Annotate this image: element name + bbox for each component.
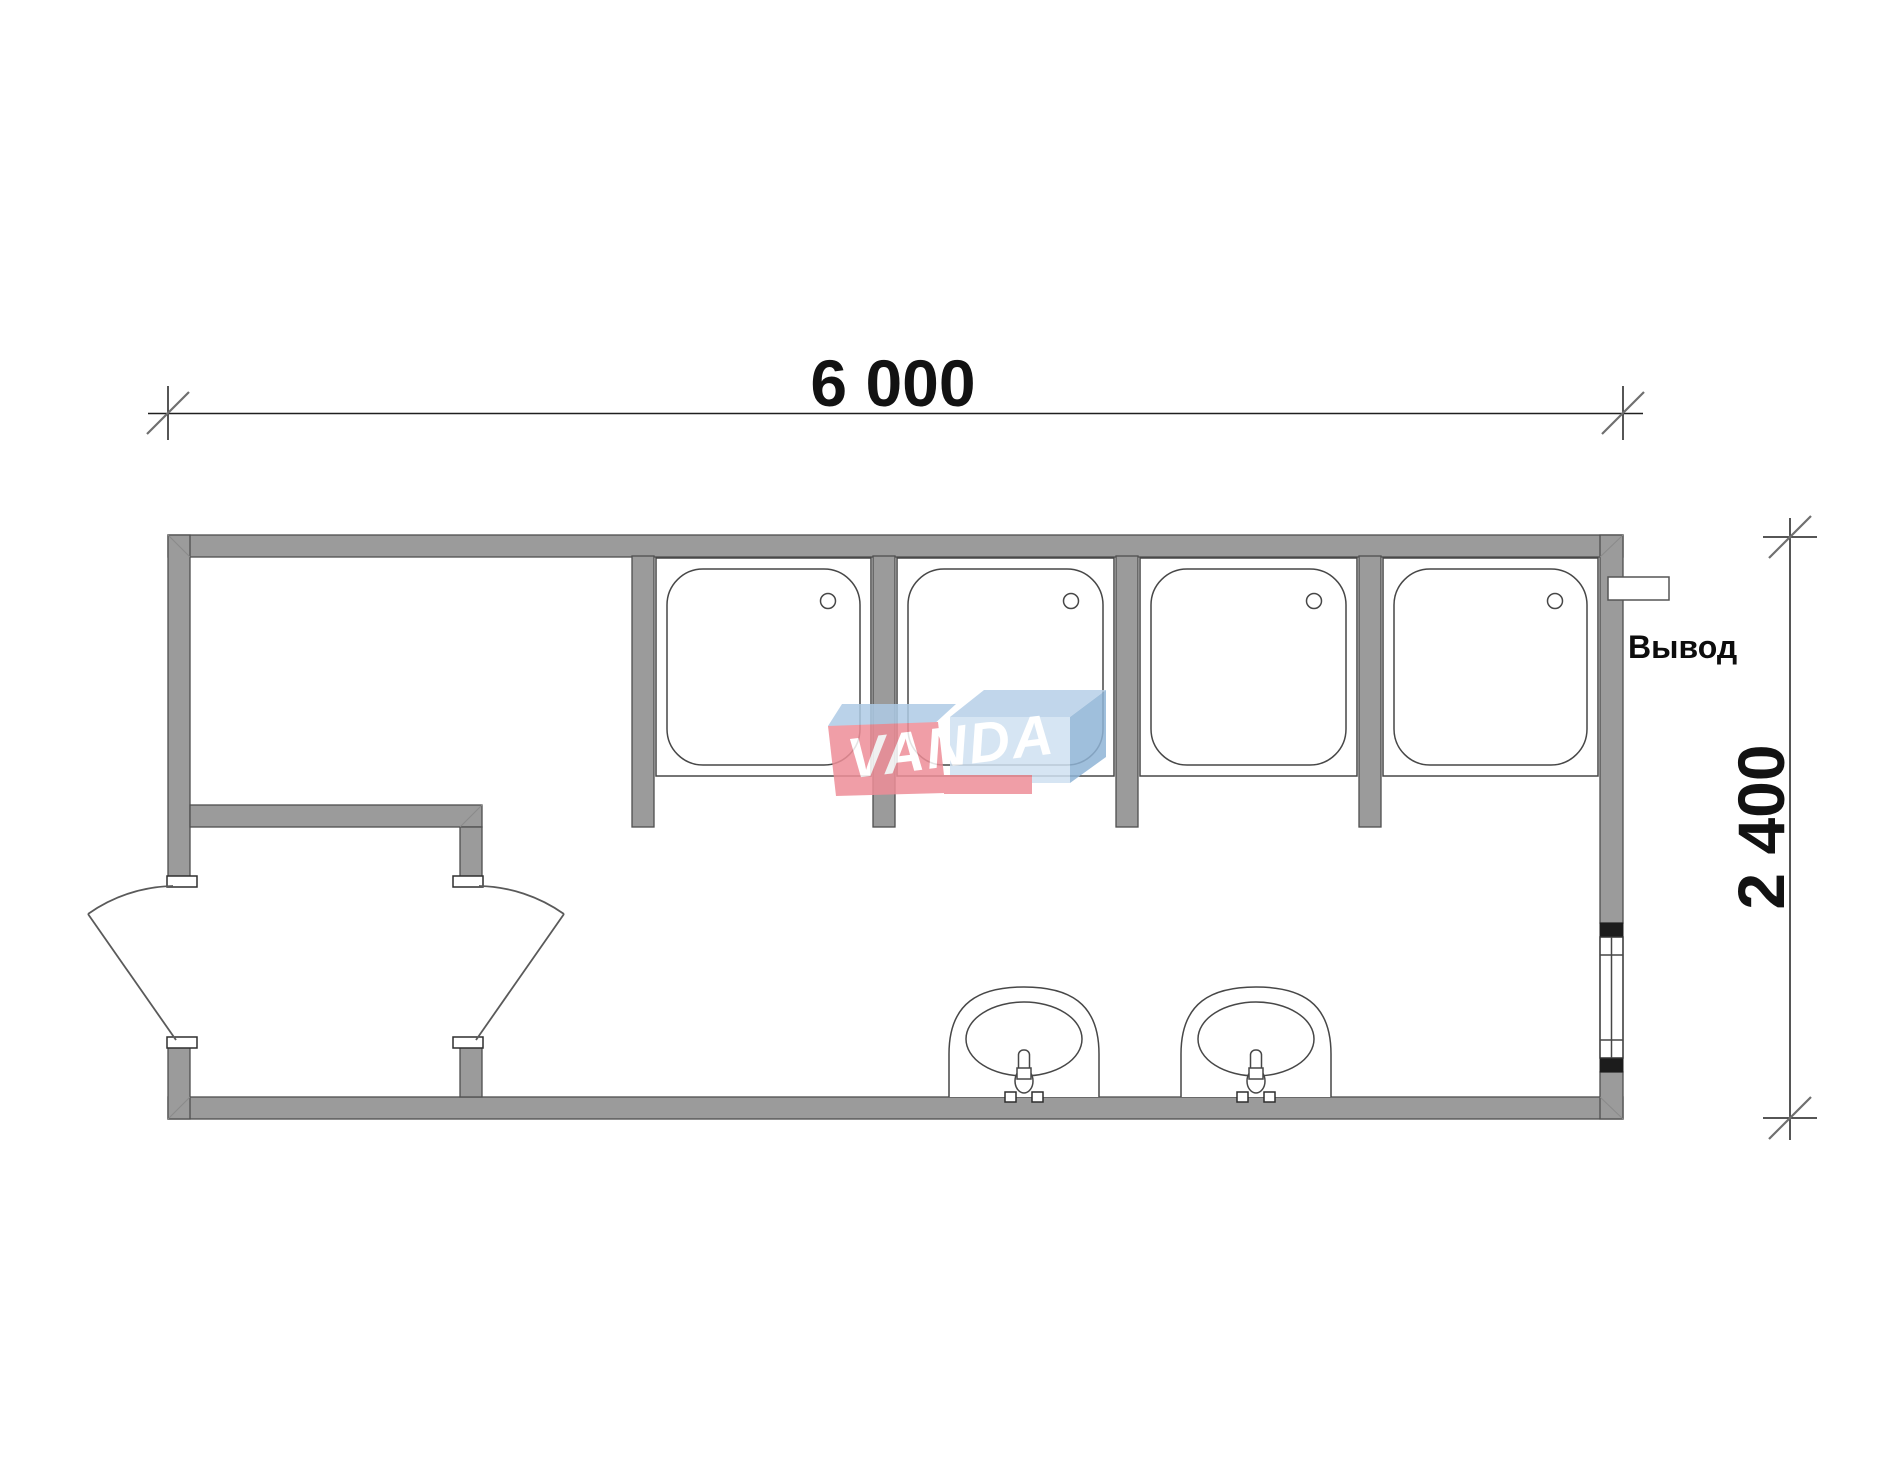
faucet-joint [1017,1068,1031,1079]
washbasin-bracket [1264,1092,1275,1102]
shower-drain [1064,594,1079,609]
washbasin-1 [949,987,1099,1102]
wall-right-lower [1600,1072,1623,1119]
dimension-depth: 2 400 [1724,516,1817,1140]
shower-drain [1307,594,1322,609]
wall-left-upper [168,535,190,877]
shower-stall-3 [1140,558,1357,776]
dimension-length: 6 000 [147,346,1644,440]
wall-bottom [168,1097,1623,1119]
exterior-door-swing-arc [88,886,173,914]
window-cap-top [1600,923,1623,937]
exterior-door-leaf [88,914,176,1040]
dimension-depth-label: 2 400 [1724,744,1798,909]
wall-top [168,535,1623,557]
vestibule-wall-vertical-lower [460,1047,482,1097]
shower-drain [1548,594,1563,609]
floor-plan-page: 6 000 2 400 Вывод VANDA [0,0,1899,1481]
shower-partition-3 [1116,556,1138,827]
door-stop [453,1037,483,1048]
vestibule-wall-vertical-upper [460,827,482,877]
washbasin-2 [1181,987,1331,1102]
shower-stall-4 [1383,558,1598,776]
shower-drain [821,594,836,609]
washbasin-bracket [1005,1092,1016,1102]
door-stop [453,876,483,887]
shower-partition-4 [1359,556,1381,827]
washbasin-bracket [1237,1092,1248,1102]
door-stop [167,1037,197,1048]
shower-partition-1 [632,556,654,827]
floor-plan-canvas: 6 000 2 400 Вывод VANDA [0,0,1899,1481]
outlet-label: Вывод [1628,629,1737,665]
watermark-logo: VANDA [828,690,1106,796]
vestibule-wall-horizontal [190,805,482,827]
interior-door-leaf [476,914,564,1040]
entry-doors [88,876,564,1048]
interior-door-swing-arc [479,886,564,914]
washbasins [949,987,1331,1102]
window [1600,923,1623,1072]
faucet-joint [1249,1068,1263,1079]
dimension-length-label: 6 000 [810,346,975,420]
washbasin-bracket [1032,1092,1043,1102]
utility-outlet-box [1608,577,1669,600]
window-cap-bottom [1600,1058,1623,1072]
